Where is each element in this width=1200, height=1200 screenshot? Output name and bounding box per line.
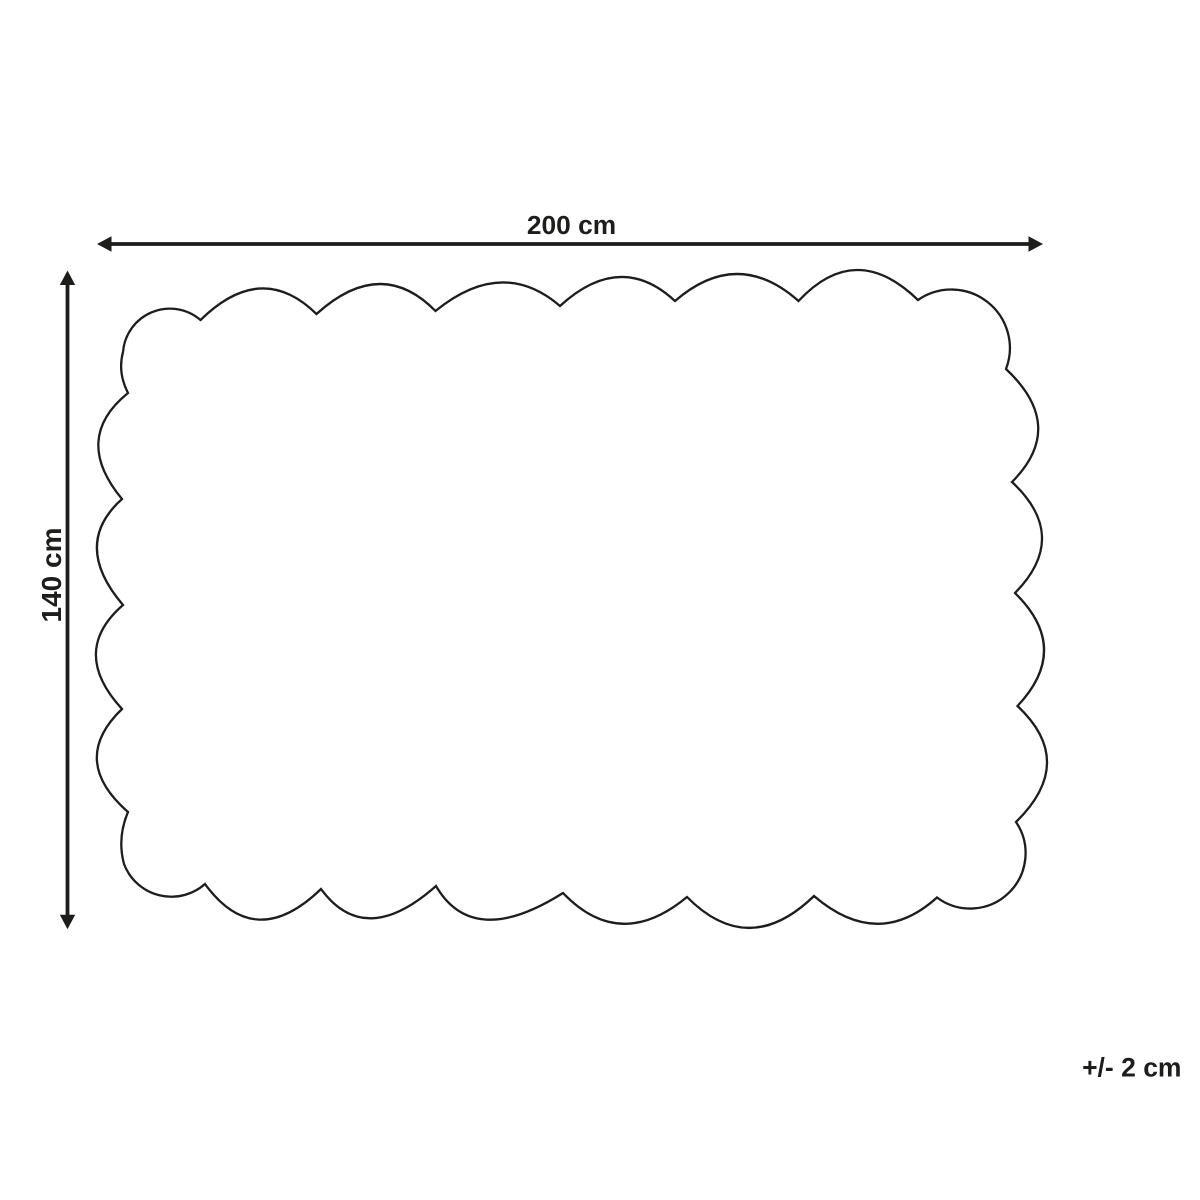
svg-text:140 cm: 140 cm — [36, 528, 67, 623]
svg-text:+/- 2 cm: +/- 2 cm — [1082, 1053, 1181, 1083]
svg-text:200 cm: 200 cm — [527, 210, 616, 240]
